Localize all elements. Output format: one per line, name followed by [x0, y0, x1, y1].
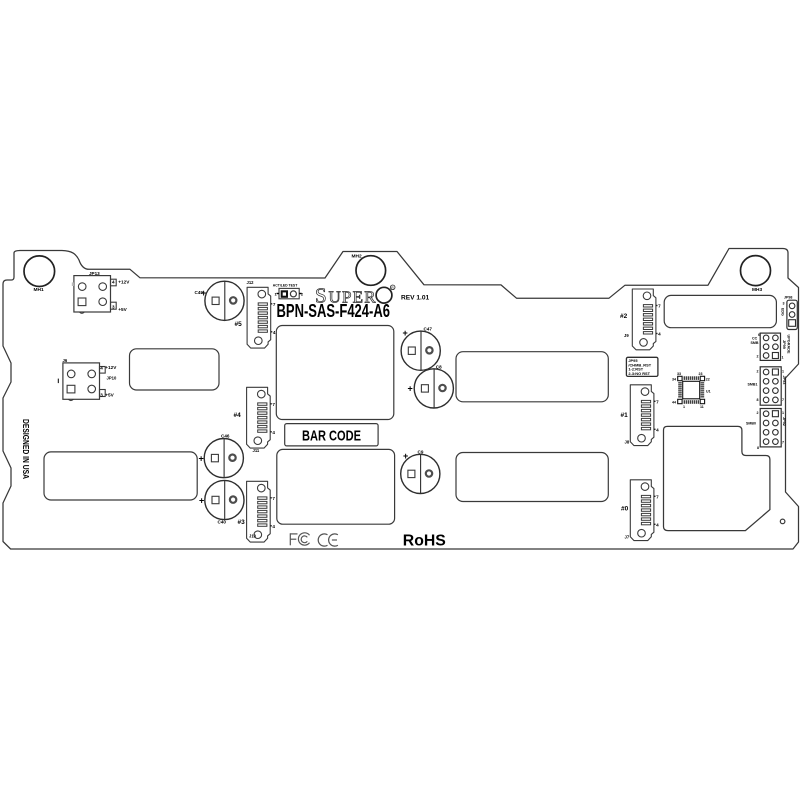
svg-text:JP93: JP93 — [782, 376, 786, 385]
svg-text:UPGRADE: UPGRADE — [787, 335, 791, 354]
svg-text:+12V: +12V — [118, 280, 130, 285]
svg-text:2-3:NO RST: 2-3:NO RST — [628, 371, 650, 376]
svg-text:#3: #3 — [238, 519, 246, 526]
svg-text:+: + — [199, 454, 204, 464]
svg-text:C8: C8 — [436, 365, 442, 370]
svg-text:2: 2 — [757, 411, 759, 415]
svg-text:J11: J11 — [253, 448, 260, 453]
svg-text:1: 1 — [782, 370, 784, 374]
svg-text:C47: C47 — [424, 327, 433, 332]
svg-text:1: 1 — [782, 411, 784, 415]
svg-text:33: 33 — [677, 372, 681, 376]
svg-text:U1: U1 — [706, 390, 711, 394]
svg-text:DESIGNED IN USA: DESIGNED IN USA — [21, 419, 31, 479]
svg-text:C9: C9 — [418, 450, 424, 455]
svg-text:BPN-SAS-F424-A6: BPN-SAS-F424-A6 — [277, 301, 391, 321]
svg-text:4: 4 — [100, 365, 103, 370]
svg-text:BAR CODE: BAR CODE — [302, 427, 361, 444]
svg-text:34: 34 — [672, 377, 676, 381]
svg-text:J8: J8 — [625, 440, 630, 445]
svg-text:JP92: JP92 — [782, 417, 786, 426]
svg-text:JP13: JP13 — [89, 271, 100, 276]
svg-text:3: 3 — [112, 305, 115, 310]
svg-text:ACT/LED TEST: ACT/LED TEST — [273, 284, 298, 288]
svg-text:J7: J7 — [625, 535, 630, 540]
svg-text:JP99: JP99 — [782, 340, 786, 349]
svg-text:3: 3 — [783, 302, 785, 306]
svg-text:SMB1: SMB1 — [748, 383, 758, 387]
svg-text:EDG: EDG — [781, 308, 785, 316]
svg-text:CC: CC — [752, 337, 758, 341]
svg-text:1: 1 — [782, 356, 784, 360]
svg-text:JP10: JP10 — [107, 376, 117, 381]
svg-text:44: 44 — [672, 401, 676, 405]
svg-text:+5V: +5V — [105, 393, 114, 398]
svg-text:C46: C46 — [221, 434, 230, 439]
svg-text:#1: #1 — [621, 412, 629, 419]
svg-text:7: 7 — [782, 441, 784, 445]
svg-text:+12V: +12V — [105, 365, 117, 370]
svg-text:+: + — [403, 451, 408, 461]
svg-text:MH1: MH1 — [34, 287, 44, 293]
svg-text:J6: J6 — [63, 358, 68, 363]
svg-text:+5V: +5V — [118, 307, 127, 312]
svg-text:7: 7 — [782, 398, 784, 402]
svg-text:+: + — [408, 384, 413, 394]
svg-text:1: 1 — [683, 405, 685, 409]
svg-text:+: + — [403, 328, 408, 338]
svg-text:8: 8 — [757, 446, 759, 450]
svg-text:+: + — [199, 496, 204, 506]
svg-text:3: 3 — [100, 393, 103, 398]
svg-text:MH3: MH3 — [752, 287, 762, 293]
svg-text:MH2: MH2 — [352, 254, 362, 260]
svg-text:2: 2 — [757, 370, 759, 374]
svg-text:#2: #2 — [620, 313, 628, 320]
svg-text:#5: #5 — [235, 321, 243, 328]
svg-text:SMB: SMB — [751, 341, 759, 345]
svg-text:J10: J10 — [249, 534, 257, 539]
svg-text:JP98: JP98 — [784, 296, 792, 300]
svg-text:C40: C40 — [218, 520, 227, 525]
svg-text:RoHS: RoHS — [403, 532, 446, 549]
svg-text:8: 8 — [757, 398, 759, 402]
svg-text:22: 22 — [706, 377, 710, 381]
svg-text:#4: #4 — [234, 412, 242, 419]
svg-text:11: 11 — [700, 405, 704, 409]
svg-text:23: 23 — [699, 372, 703, 376]
svg-text:6: 6 — [758, 333, 760, 337]
svg-text:J12: J12 — [247, 280, 255, 285]
svg-text:2: 2 — [757, 355, 759, 359]
svg-text:2: 2 — [301, 291, 304, 296]
svg-text:4: 4 — [112, 280, 115, 285]
svg-text:#0: #0 — [621, 506, 629, 513]
svg-text:+: + — [201, 288, 206, 298]
svg-text:J9: J9 — [624, 333, 629, 338]
svg-text:REV 1.01: REV 1.01 — [401, 295, 430, 302]
svg-text:SMB0: SMB0 — [746, 422, 756, 426]
